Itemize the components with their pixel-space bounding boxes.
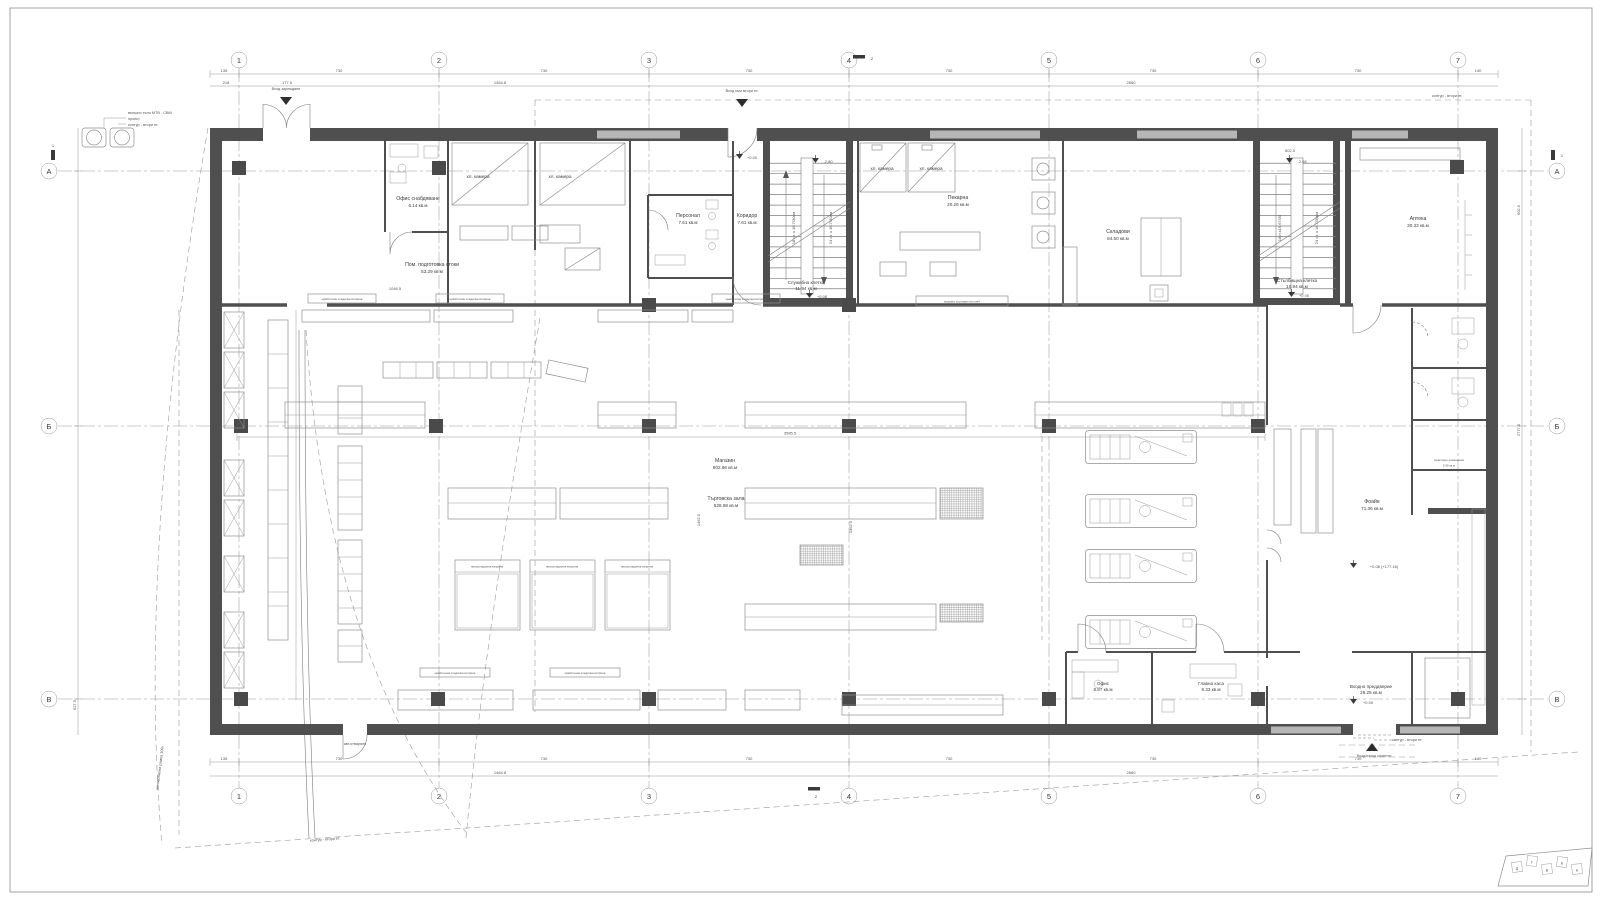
- entrance-customers-label: Вход/изход клиенти: [1357, 754, 1392, 758]
- note-line1: външно тяло МТВ - СВМ: [128, 111, 172, 115]
- svg-text:730: 730: [336, 756, 343, 761]
- svg-text:140: 140: [1475, 756, 1482, 761]
- grid-col-7: 7: [1456, 56, 1460, 65]
- svg-text:602.5: 602.5: [1516, 204, 1521, 215]
- svg-text:нискохладилна витрина: нискохладилна витрина: [471, 565, 504, 569]
- dimension-lines: 135730 730730 730730 730140 218177.5 146…: [72, 68, 1526, 776]
- grid-row-A-l: А: [46, 167, 51, 176]
- office-furniture: [390, 144, 438, 183]
- grid-row-V-r: В: [1554, 695, 1559, 704]
- svg-text:730: 730: [1355, 68, 1362, 73]
- svg-text:7.61 кв.м: 7.61 кв.м: [678, 220, 697, 225]
- grid-col-7b: 7: [1456, 792, 1460, 801]
- svg-text:крайстенна хладилна витрина: крайстенна хладилна витрина: [435, 671, 476, 675]
- grid-col-6b: 6: [1256, 792, 1260, 801]
- svg-text:крайстенна хладилна витрина: крайстенна хладилна витрина: [450, 297, 491, 301]
- svg-text:Офис снабдяване: Офис снабдяване: [396, 196, 440, 202]
- grid-col-1b: 1: [237, 792, 241, 801]
- section-2-top: 2: [871, 56, 874, 61]
- wall-cases-bottom: крайстенна хладилна витрина крайстенна х…: [398, 668, 1003, 715]
- auto-door-note: авт.отваряне: [344, 742, 367, 746]
- svg-text:2660: 2660: [1127, 80, 1137, 85]
- svg-text:730: 730: [336, 68, 343, 73]
- svg-text:1464.8: 1464.8: [494, 80, 507, 85]
- grid-row-B-l: Б: [47, 422, 52, 431]
- checkout-2: [1086, 495, 1197, 528]
- svg-text:26.25 кв.м: 26.25 кв.м: [1360, 690, 1382, 695]
- svg-text:730: 730: [746, 68, 753, 73]
- floor-plan-sheet: външно тяло МТВ - СВМ проект контур - вт…: [0, 0, 1600, 906]
- elevation-markers-stairs: +0.00 -2.80 +0.08 -2.08 +0.00: [736, 151, 1310, 299]
- svg-text:Б: Б: [1561, 862, 1563, 866]
- svg-text:Пом. подготовка стоки: Пом. подготовка стоки: [405, 262, 459, 268]
- svg-text:А: А: [1576, 869, 1579, 873]
- svg-text:3585.5: 3585.5: [784, 431, 797, 436]
- svg-text:11.94 кв.м: 11.94 кв.м: [795, 286, 816, 291]
- svg-text:730: 730: [946, 756, 953, 761]
- svg-text:Коридор: Коридор: [737, 213, 758, 219]
- entrance-second-floor-label: Вход към втори ет.: [726, 89, 759, 93]
- svg-text:30.33 кв.м: 30.33 кв.м: [1407, 223, 1429, 228]
- svg-text:-2.08: -2.08: [1297, 159, 1307, 164]
- grid-col-4b: 4: [847, 792, 851, 801]
- grid-col-4: 4: [847, 56, 851, 65]
- svg-text:1464.8: 1464.8: [494, 770, 507, 775]
- svg-text:5.96 кв.м: 5.96 кв.м: [1443, 464, 1455, 468]
- note-line2: проект: [128, 117, 140, 121]
- svg-text:Служебна клетка: Служебна клетка: [788, 280, 825, 285]
- key-plan: Д Г В Б А: [1498, 848, 1592, 886]
- svg-text:+0.08: +0.08: [817, 294, 828, 299]
- grid-col-2b: 2: [437, 792, 441, 801]
- floor-plan-svg: външно тяло МТВ - СВМ проект контур - вт…: [0, 0, 1600, 906]
- planter: [82, 128, 106, 147]
- svg-text:+0.00: +0.00: [1299, 293, 1310, 298]
- cart-stack: [1318, 429, 1333, 533]
- svg-text:135: 135: [221, 756, 228, 761]
- svg-text:крайстенна хладилна витрина: крайстенна хладилна витрина: [726, 297, 767, 301]
- vestibule-elevation: +0.00: [1363, 700, 1374, 705]
- gondolas-mid: [448, 488, 983, 630]
- grid-row-B-r: Б: [1555, 422, 1560, 431]
- column: [1450, 160, 1464, 174]
- entrance-loading-arrow: [280, 97, 292, 105]
- entrance-second-floor-arrow: [736, 99, 748, 107]
- back-room-labels: Офис снабдяване6.14 кв.м Пом. подготовка…: [396, 166, 1429, 291]
- grid-bubbles-bottom: 1 2 3 4 5 6 7: [231, 788, 1466, 804]
- svg-text:Г: Г: [1531, 861, 1533, 865]
- dim-text-top: 135730 730730 730730 730140 218177.5 146…: [221, 68, 1482, 85]
- store-label: Магазин: [715, 458, 735, 464]
- svg-text:10.94 кв.м: 10.94 кв.м: [1286, 284, 1308, 289]
- island-cases: нискохладилна витрина нискохладилна витр…: [455, 560, 670, 630]
- grid-bubbles-top: 1 2 3 4 5 6 7: [231, 52, 1466, 68]
- svg-text:Пекарна: Пекарна: [948, 195, 969, 201]
- svg-text:84.50 кв.м: 84.50 кв.м: [1107, 236, 1129, 241]
- stair-b-flight1: 18ст.х16.67/30: [1277, 214, 1282, 241]
- main-cash-label: Главна каса: [1198, 681, 1224, 686]
- entrance-customers-arrow: [1366, 743, 1378, 751]
- checkout-zone: [1042, 403, 1253, 649]
- grid-col-5b: 5: [1047, 792, 1051, 801]
- svg-text:2660: 2660: [1127, 770, 1137, 775]
- svg-text:730: 730: [746, 756, 753, 761]
- stair-a-flight2: 24 ст. x 16.7/30см: [828, 212, 833, 245]
- svg-text:627.5: 627.5: [72, 699, 77, 710]
- svg-text:Складови: Складови: [1106, 229, 1130, 235]
- vestibule-label: Входно преддверие: [1350, 684, 1393, 689]
- svg-text:140: 140: [1475, 68, 1482, 73]
- office-label: Офис: [1097, 681, 1110, 686]
- gondolas-upper: [383, 360, 588, 382]
- svg-text:730: 730: [541, 756, 548, 761]
- svg-text:9.33 кв.м: 9.33 кв.м: [1201, 687, 1220, 692]
- svg-text:135: 135: [221, 68, 228, 73]
- svg-text:20.26 кв.м: 20.26 кв.м: [947, 202, 969, 207]
- svg-text:218: 218: [223, 80, 230, 85]
- cart-stack: [1301, 429, 1316, 533]
- svg-text:1462.5: 1462.5: [696, 513, 701, 526]
- svg-text:7.61 кв.м: 7.61 кв.м: [737, 220, 756, 225]
- produce-racks: [224, 310, 362, 700]
- svg-text:хл. камера: хл. камера: [870, 166, 893, 171]
- svg-text:Персонал: Персонал: [676, 213, 700, 219]
- svg-text:нискохладилна витрина: нискохладилна витрина: [546, 565, 579, 569]
- toilets: санитарно помещение 5.96 кв.м: [1412, 308, 1486, 515]
- svg-text:730: 730: [946, 68, 953, 73]
- svg-text:6.14 кв.м: 6.14 кв.м: [408, 203, 427, 208]
- note-line3: контур - втори ет.: [128, 123, 158, 127]
- svg-text:В: В: [1546, 869, 1548, 873]
- cold-storage-racks: [452, 143, 625, 270]
- cart-corral-strip: [1472, 509, 1485, 705]
- contour-note-br: контур - втори ет.: [1392, 738, 1422, 742]
- svg-text:1462.5: 1462.5: [848, 520, 853, 533]
- svg-text:730: 730: [1150, 756, 1157, 761]
- svg-text:802.86 кв.м: 802.86 кв.м: [713, 465, 737, 470]
- grid-col-3: 3: [647, 56, 651, 65]
- svg-text:730: 730: [541, 68, 548, 73]
- cart-corral: [1425, 658, 1470, 718]
- stair-b-flight2: 24 ст. х 16.7/30см: [1314, 212, 1319, 245]
- svg-text:730: 730: [1150, 68, 1157, 73]
- svg-text:нискохладилна витрина: нискохладилна витрина: [621, 565, 654, 569]
- office-desks: [1072, 660, 1242, 712]
- svg-text:53.29 кв.м: 53.29 кв.м: [421, 269, 443, 274]
- wall-cases-top: крайстенна хладилна витрина крайстенна х…: [302, 294, 780, 322]
- checkout-4: [1086, 616, 1197, 649]
- bottom-rooms: Офис 8.87 кв.м Главна каса 9.33 кв.м Вхо…: [1066, 624, 1486, 724]
- sales-hall-label: Търговска зала: [707, 496, 744, 502]
- svg-text:Аптека: Аптека: [1410, 216, 1427, 222]
- foyer-elevation: +0.08 (+177.16): [1370, 564, 1399, 569]
- planter: [110, 128, 134, 147]
- foyer-zone: санитарно помещение 5.96 кв.м Фоайе 71.3…: [1267, 305, 1486, 724]
- svg-text:крайстенна хладилна витрина: крайстенна хладилна витрина: [565, 671, 606, 675]
- svg-text:крайстенна хладилна витрина: крайстенна хладилна витрина: [322, 297, 363, 301]
- svg-text:2777.5: 2777.5: [1516, 423, 1521, 436]
- section-1-right: 1: [1561, 153, 1564, 158]
- entrance-loading-label: Вход зареждане: [272, 87, 301, 91]
- stair-a-flight1: 18 ст. x 16.7/30см: [791, 212, 796, 245]
- svg-text:хл. камера: хл. камера: [919, 166, 942, 171]
- grid-col-2: 2: [437, 56, 441, 65]
- dim-text-bottom: 135730 730730 730730 730140 1464.82660: [221, 756, 1482, 775]
- section-1-left: 1: [52, 143, 55, 148]
- svg-text:хл. камера: хл. камера: [466, 174, 489, 179]
- contour-note-diag: контур - втори ет.: [310, 836, 341, 842]
- svg-text:1046.5: 1046.5: [389, 286, 402, 291]
- grid-col-1: 1: [237, 56, 241, 65]
- svg-text:хл. камера: хл. камера: [548, 174, 571, 179]
- svg-text:Д: Д: [1516, 867, 1519, 871]
- staff-wc: [655, 200, 718, 265]
- svg-text:-2.80: -2.80: [823, 159, 833, 164]
- svg-text:602.5: 602.5: [1285, 148, 1296, 153]
- foyer-label: Фоайе: [1364, 498, 1380, 505]
- svg-text:71.36 кв.м: 71.36 кв.м: [1361, 506, 1383, 511]
- grid-row-V-l: В: [46, 695, 51, 704]
- grid-col-5: 5: [1047, 56, 1051, 65]
- grid-row-A-r: А: [1554, 167, 1559, 176]
- grid-col-3b: 3: [647, 792, 651, 801]
- grid-col-6: 6: [1256, 56, 1260, 65]
- bread-slicer-label: машина за рязане на хляб: [944, 300, 980, 304]
- checkout-3: [1086, 550, 1197, 583]
- svg-text:Стълбищна клетка: Стълбищна клетка: [1277, 278, 1318, 283]
- checkout-1: [1086, 431, 1197, 464]
- svg-text:санитарно помещение: санитарно помещение: [1434, 458, 1465, 462]
- svg-text:528.98 кв.м: 528.98 кв.м: [714, 503, 738, 508]
- svg-text:177.5: 177.5: [282, 80, 293, 85]
- svg-text:+0.00: +0.00: [747, 155, 758, 160]
- svg-text:8.87 кв.м: 8.87 кв.м: [1093, 687, 1112, 692]
- section-2-bottom: 2: [815, 794, 818, 799]
